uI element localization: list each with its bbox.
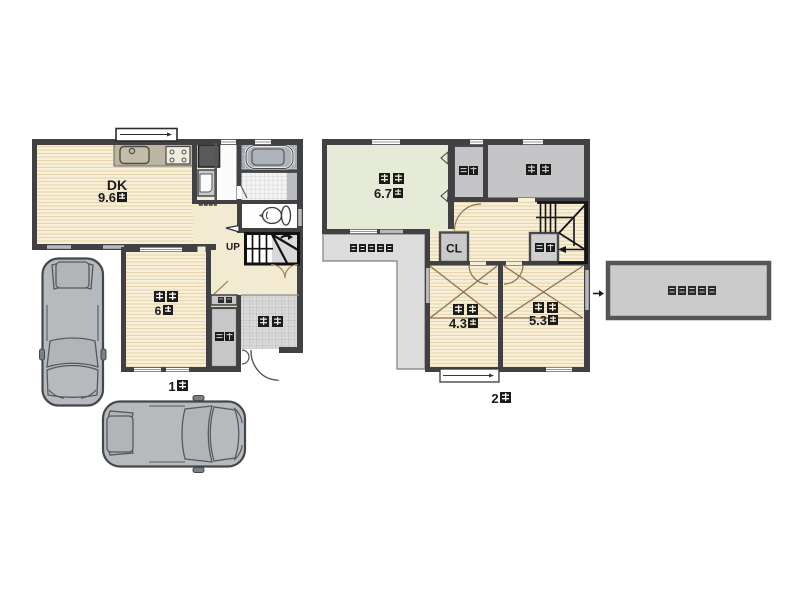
svg-text:9.6: 9.6	[98, 190, 116, 205]
svg-text:6.7: 6.7	[374, 186, 392, 201]
svg-text:CL: CL	[446, 242, 462, 256]
svg-text:6: 6	[155, 304, 162, 318]
svg-text:UP: UP	[226, 242, 240, 253]
svg-text:2: 2	[491, 391, 498, 406]
svg-text:1: 1	[168, 379, 175, 394]
svg-text:4.3: 4.3	[449, 316, 467, 331]
svg-text:5.3: 5.3	[529, 313, 547, 328]
